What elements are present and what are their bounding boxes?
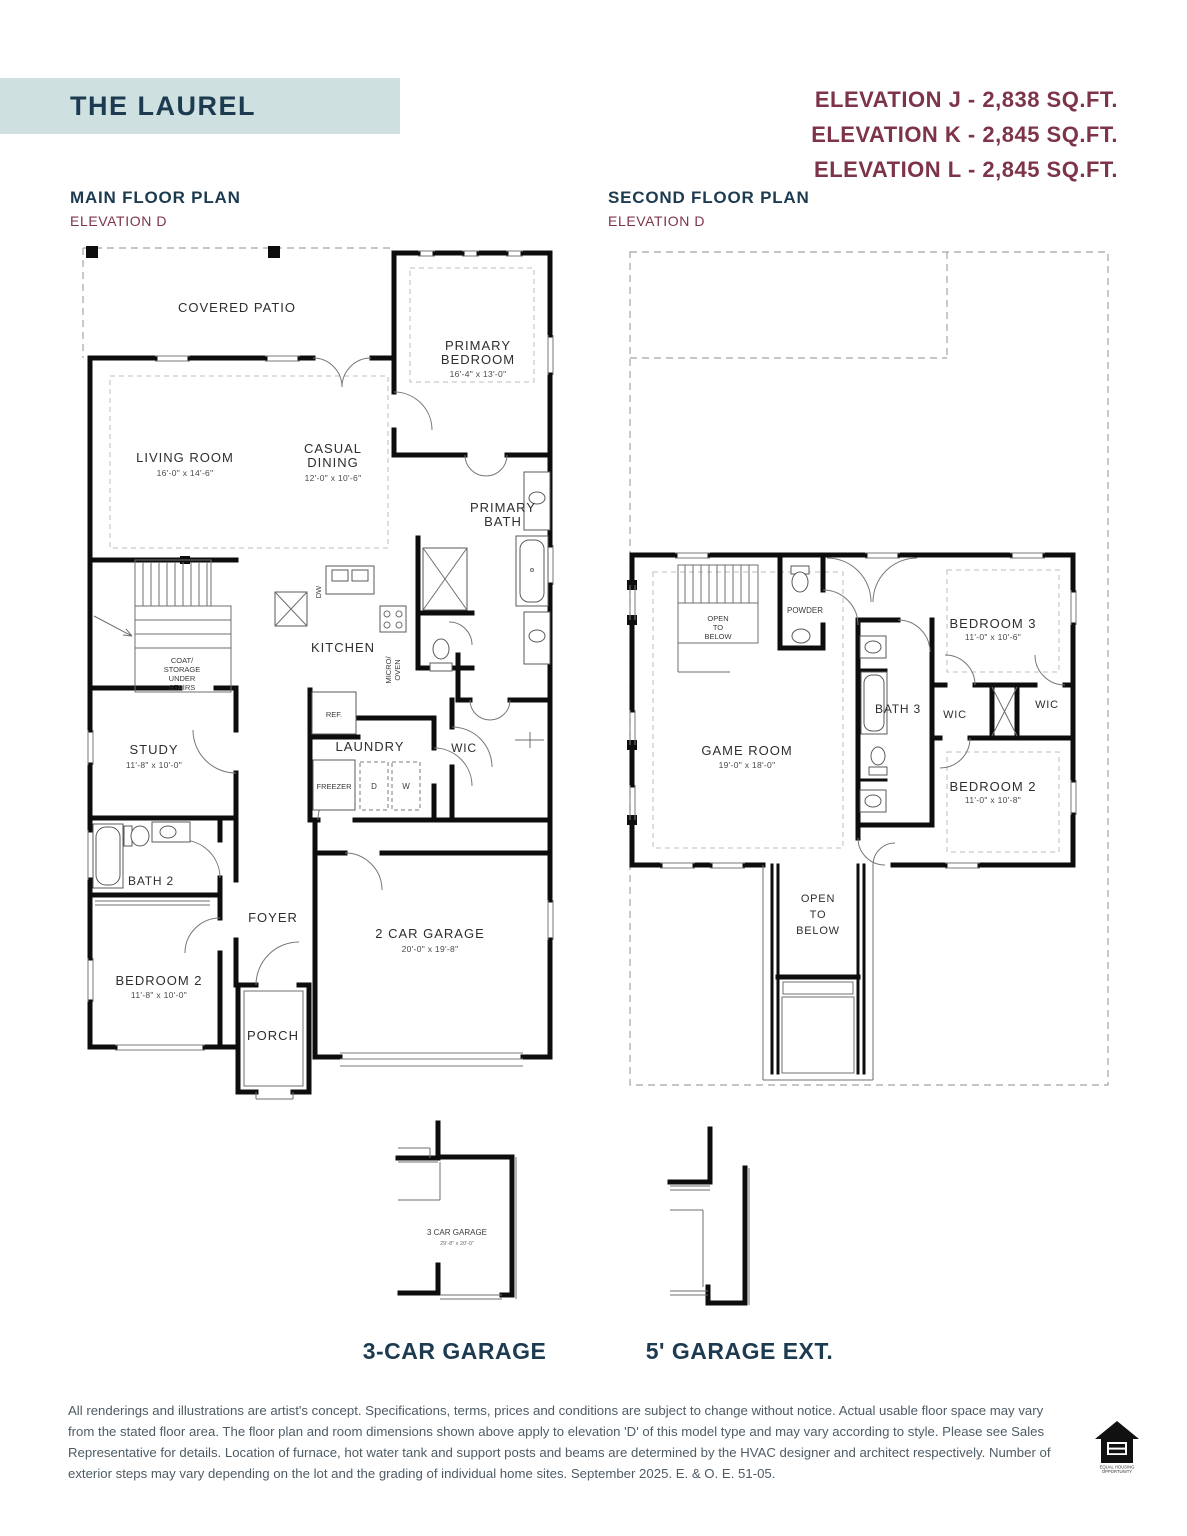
label-3-car-garage-dims: 29'-8" x 20'-0": [440, 1241, 474, 1247]
toilet: [433, 639, 449, 659]
bath3-sink: [865, 641, 881, 653]
label-porch: PORCH: [247, 1028, 299, 1043]
caption-garage-ext: 5' GARAGE EXT.: [612, 1338, 867, 1365]
label-foyer: FOYER: [248, 910, 298, 925]
three-car-garage-option: 3 CAR GARAGE 29'-8" x 20'-0": [385, 1115, 550, 1325]
main-floor-dashed-lines: [83, 248, 534, 548]
label-primary-bedroom: BEDROOM: [441, 352, 515, 367]
equal-housing-text: OPPORTUNITY: [1102, 1469, 1132, 1474]
label-washer: W: [402, 782, 410, 791]
label-dryer: D: [371, 782, 377, 791]
label-bedroom2-dims: 11'-8" x 10'-0": [131, 990, 187, 1000]
label-wic-left: WIC: [943, 709, 967, 721]
main-floor-plan: COVERED PATIO LIVING ROOM 16'-0" x 14'-6…: [60, 240, 600, 1100]
label-open-to-below-stairs: OPEN: [707, 614, 728, 623]
label-bedroom2: BEDROOM 2: [115, 973, 202, 988]
label-study: STUDY: [129, 742, 178, 757]
garage-ext-walls: [670, 1129, 749, 1305]
label-primary-bedroom-dims: 16'-4" x 13'-0": [450, 369, 507, 379]
second-floor-title: SECOND FLOOR PLAN: [608, 188, 1008, 208]
patio-post: [268, 246, 280, 258]
label-bedroom2-second-dims: 11'-0" x 10'-8": [965, 795, 1021, 805]
label-wic-right: WIC: [1035, 699, 1059, 711]
label-powder: POWDER: [787, 606, 823, 615]
label-coat-storage: COAT/: [171, 656, 194, 665]
label-game-room-dims: 19'-0" x 18'-0": [719, 760, 776, 770]
label-wic: WIC: [451, 741, 477, 755]
label-primary-bath: PRIMARY: [470, 500, 536, 515]
powder-sink: [792, 629, 810, 643]
label-casual-dining: CASUAL: [304, 441, 362, 456]
second-floor-subtitle: ELEVATION D: [608, 213, 1008, 229]
label-freezer: FREEZER: [316, 782, 352, 791]
label-open-to-below-stairs: BELOW: [704, 632, 732, 641]
label-primary-bedroom: PRIMARY: [445, 338, 511, 353]
label-coat-storage: STORAGE: [164, 665, 201, 674]
label-2-car-garage: 2 CAR GARAGE: [375, 926, 485, 941]
disclaimer-text: All renderings and illustrations are art…: [68, 1400, 1070, 1484]
label-kitchen: KITCHEN: [311, 640, 375, 655]
elevation-j: ELEVATION J - 2,838 SQ.FT.: [811, 82, 1118, 117]
title-banner: THE LAUREL: [0, 78, 400, 134]
bath3-toilet: [871, 747, 885, 765]
label-open-to-below-void: BELOW: [796, 925, 840, 937]
label-laundry: LAUNDRY: [336, 739, 405, 754]
label-coat-storage: STAIRS: [169, 683, 196, 692]
bath2-sink: [160, 826, 176, 838]
page-title: THE LAUREL: [0, 78, 400, 134]
garage-ext-option: [665, 1115, 795, 1325]
label-open-to-below-void: OPEN: [801, 893, 835, 905]
label-micro-oven: OVEN: [393, 659, 402, 680]
main-floor-stairs: [94, 560, 231, 692]
main-floor-heading: MAIN FLOOR PLAN ELEVATION D: [70, 188, 470, 229]
patio-post: [86, 246, 98, 258]
label-ref: REF.: [326, 710, 342, 719]
equal-housing-house-icon: [1095, 1421, 1139, 1463]
label-living-room-dims: 16'-0" x 14'-6": [157, 468, 214, 478]
label-game-room: GAME ROOM: [701, 743, 792, 758]
label-bath2: BATH 2: [128, 874, 174, 888]
label-2-car-garage-dims: 20'-0" x 19'-8": [402, 944, 459, 954]
range: [380, 606, 406, 632]
second-floor-heading: SECOND FLOOR PLAN ELEVATION D: [608, 188, 1008, 229]
kitchen-sink: [332, 570, 348, 581]
label-open-to-below-stairs: TO: [713, 623, 723, 632]
label-bedroom3: BEDROOM 3: [949, 616, 1036, 631]
elevation-k: ELEVATION K - 2,845 SQ.FT.: [811, 117, 1118, 152]
kitchen-sink: [352, 570, 368, 581]
three-car-garage-walls: [398, 1123, 516, 1299]
label-micro-oven: MICRO/: [384, 656, 393, 684]
label-primary-bath: BATH: [484, 514, 522, 529]
brochure-page: THE LAUREL ELEVATION J - 2,838 SQ.FT. EL…: [0, 0, 1187, 1536]
main-floor-subtitle: ELEVATION D: [70, 213, 470, 229]
label-bedroom2-second: BEDROOM 2: [949, 779, 1036, 794]
powder-toilet: [792, 572, 808, 592]
second-floor-windows: [630, 553, 1076, 868]
label-3-car-garage: 3 CAR GARAGE: [427, 1228, 487, 1237]
label-coat-storage: UNDER: [169, 674, 196, 683]
elevation-list: ELEVATION J - 2,838 SQ.FT. ELEVATION K -…: [811, 82, 1118, 187]
label-dishwasher: DW: [314, 585, 323, 598]
label-casual-dining: DINING: [307, 455, 359, 470]
label-bath3: BATH 3: [875, 702, 921, 716]
bath2-toilet: [131, 826, 149, 846]
label-open-to-below-void: TO: [810, 909, 827, 921]
elevation-l: ELEVATION L - 2,845 SQ.FT.: [811, 152, 1118, 187]
equal-housing-logo: EQUAL HOUSING OPPORTUNITY: [1090, 1418, 1144, 1474]
label-casual-dining-dims: 12'-0" x 10'-6": [305, 473, 362, 483]
second-floor-plan: OPEN TO BELOW POWDER BEDROOM 3 11'-0" x …: [615, 240, 1145, 1100]
label-bedroom3-dims: 11'-0" x 10'-6": [965, 632, 1021, 642]
label-covered-patio: COVERED PATIO: [178, 300, 296, 315]
main-floor-labels: COVERED PATIO LIVING ROOM 16'-0" x 14'-6…: [115, 300, 536, 1043]
label-study-dims: 11'-8" x 10'-0": [126, 760, 182, 770]
label-living-room: LIVING ROOM: [136, 450, 234, 465]
main-floor-title: MAIN FLOOR PLAN: [70, 188, 470, 208]
caption-3-car-garage: 3-CAR GARAGE: [327, 1338, 582, 1365]
